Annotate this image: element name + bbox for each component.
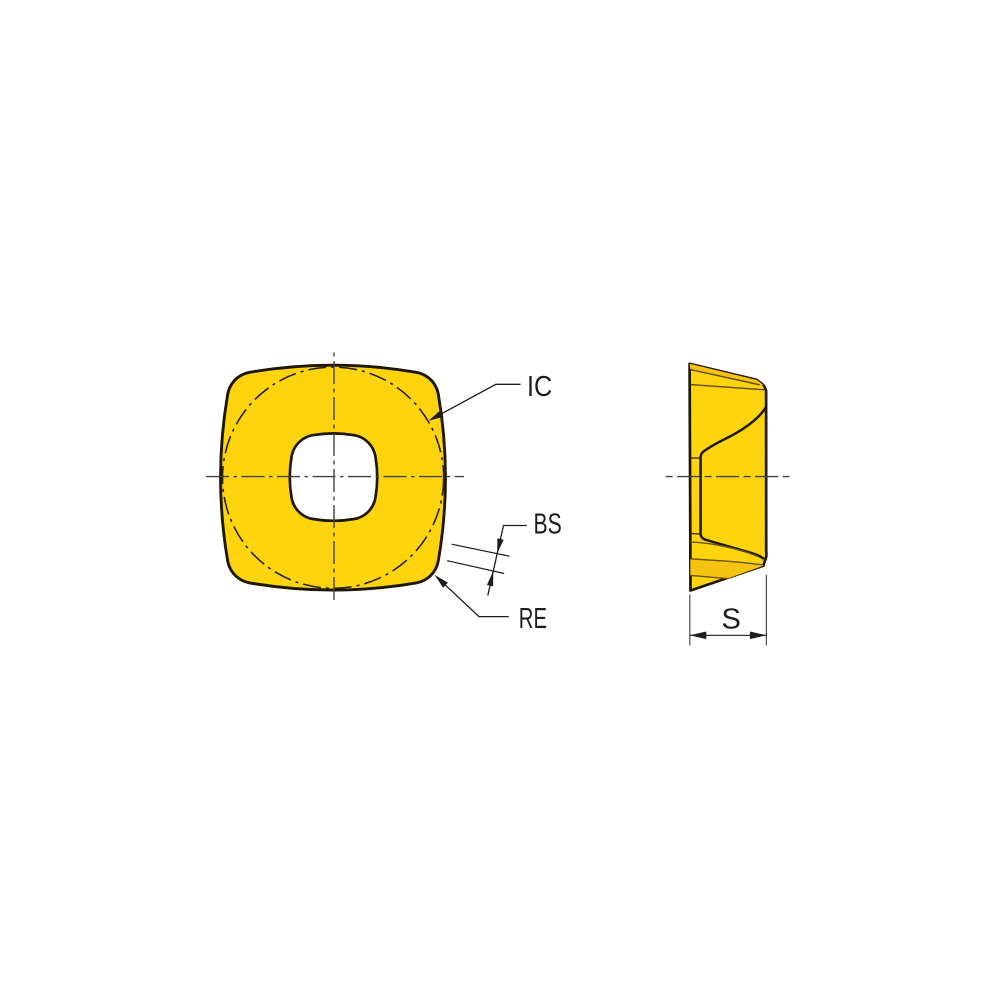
svg-text:BS: BS: [534, 509, 562, 541]
svg-text:S: S: [722, 603, 741, 635]
svg-text:RE: RE: [519, 603, 547, 635]
svg-text:IC: IC: [527, 371, 552, 403]
